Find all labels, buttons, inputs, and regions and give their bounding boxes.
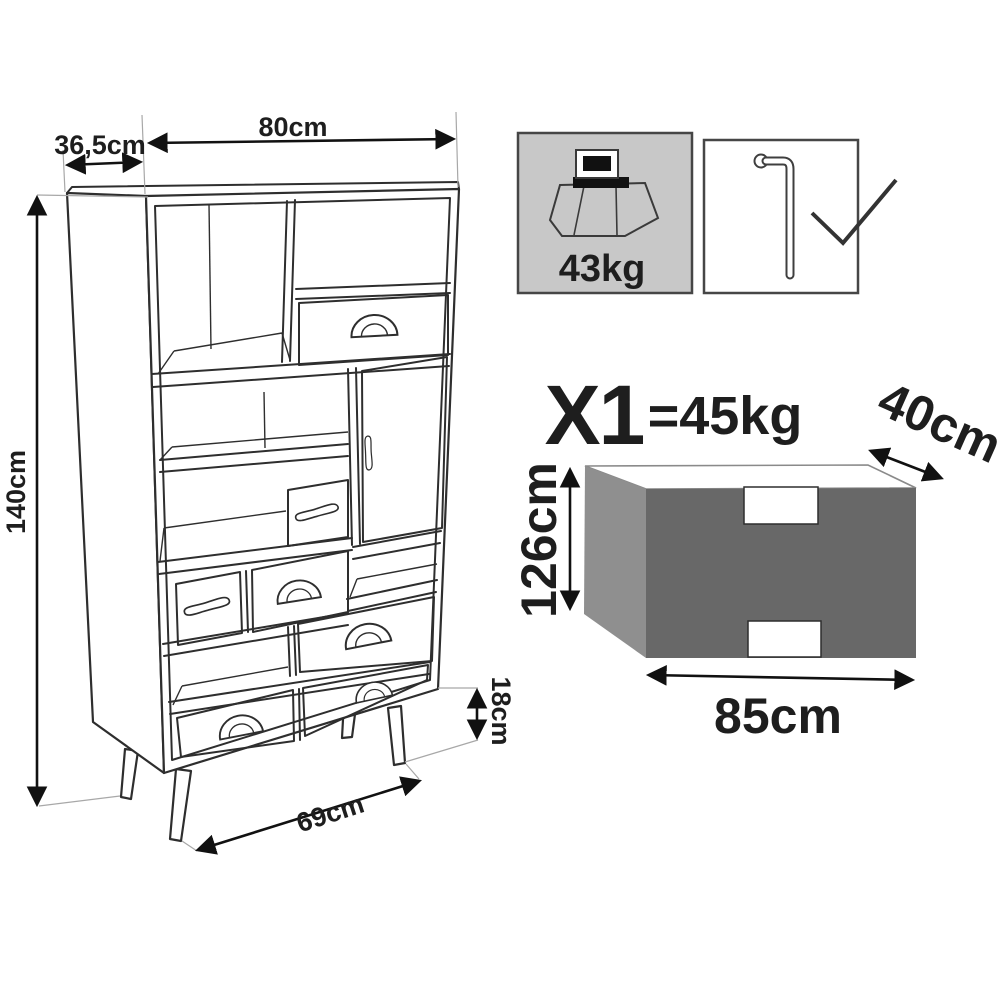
max-load-badge: 43kg — [518, 133, 692, 293]
package-quantity: X1 — [545, 368, 644, 462]
package-diagram: X1 =45kg 40cm 126cm 85cm — [511, 368, 1000, 744]
depth-dimension-label: 36,5cm — [54, 130, 146, 160]
assembly-diagram: 36,5cm 80cm 140cm 18cm 69cm 43kg X1 =45k… — [0, 0, 1000, 1000]
package-label-top — [744, 487, 818, 524]
package-width-label: 85cm — [714, 688, 842, 744]
leg-height-dimension-label: 18cm — [486, 676, 516, 745]
package-box-drawing — [584, 465, 916, 658]
package-label-bottom — [748, 621, 821, 657]
included-tool-badge — [704, 140, 896, 293]
height-dimension-label: 140cm — [1, 450, 31, 534]
width-dimension-label: 80cm — [258, 112, 327, 142]
package-width-arrow — [649, 675, 912, 680]
package-weight: =45kg — [648, 386, 803, 446]
package-height-label: 126cm — [511, 462, 567, 618]
cabinet-line-drawing — [67, 182, 459, 841]
max-load-value: 43kg — [559, 248, 646, 290]
diagram-canvas: 36,5cm 80cm 140cm 18cm 69cm 43kg X1 =45k… — [0, 0, 1000, 1000]
leg-span-dimension-label: 69cm — [293, 789, 368, 839]
package-side-face — [584, 466, 646, 658]
depth-dimension-arrow — [68, 162, 140, 165]
